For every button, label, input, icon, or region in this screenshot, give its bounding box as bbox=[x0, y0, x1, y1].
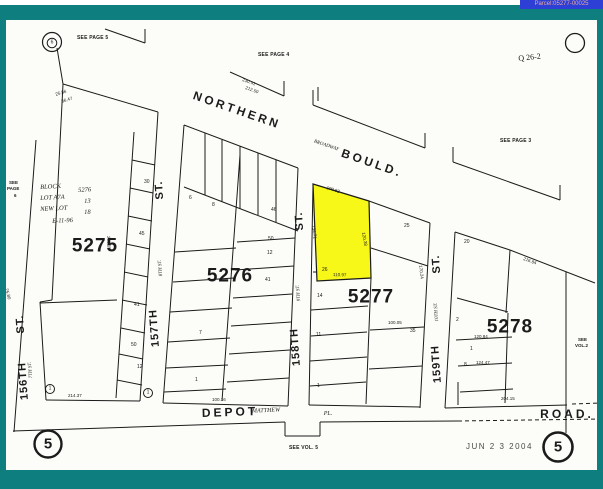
map-lot: 8 bbox=[212, 203, 215, 208]
street-name-bould: BOULD. bbox=[340, 147, 404, 179]
map-dim: 212.50 bbox=[244, 86, 258, 95]
map-dim: 170.24 bbox=[418, 265, 424, 279]
see-vol-2: VOL.2 bbox=[575, 344, 588, 349]
note-lot-value: 13 bbox=[84, 199, 91, 206]
see-page-5: SEE PAGE 5 bbox=[77, 36, 108, 41]
street-157: 157TH bbox=[148, 309, 162, 348]
page-number-right: 5 bbox=[554, 440, 562, 455]
map-lot: 14 bbox=[317, 294, 323, 299]
see-page-4: SEE PAGE 4 bbox=[258, 53, 289, 58]
circled-lot-1: 1 bbox=[147, 391, 150, 396]
map-lot: 2 bbox=[456, 318, 459, 323]
map-lot: 41 bbox=[265, 278, 271, 283]
map-dim: 124.47 bbox=[476, 361, 490, 366]
map-lot: 7 bbox=[199, 331, 202, 336]
note-lot: LOT A7A bbox=[40, 195, 65, 203]
map-lot: 1 bbox=[195, 378, 198, 383]
old-street-159: 10TH ST. bbox=[434, 302, 440, 321]
map-lot: 30 bbox=[144, 180, 150, 185]
map-lot: 26 bbox=[322, 268, 328, 273]
frame-left bbox=[0, 5, 6, 470]
street-158: 158TH bbox=[289, 328, 303, 367]
parcel-id-tag: Parcel:05277-00025 bbox=[520, 0, 603, 9]
map-dim: 204.15 bbox=[501, 397, 515, 402]
street-name-depot: DEPOT bbox=[202, 405, 259, 419]
map-dim: 36.47 bbox=[61, 97, 73, 105]
map-dim: 110.97 bbox=[333, 273, 347, 278]
tax-map-page: SEE PAGE 5SEE PAGE 4SEE PAGE 3SEEPAGE6SE… bbox=[0, 0, 603, 489]
map-dim: 25.86 bbox=[55, 90, 67, 98]
map-lot: 41 bbox=[134, 303, 140, 308]
date-stamp: JUN 2 3 2004 bbox=[466, 443, 533, 451]
note-newlot: NEW LOT bbox=[40, 206, 68, 214]
old-street-156: 7TH ST. bbox=[28, 362, 34, 379]
map-dim: 100.16 bbox=[212, 398, 226, 403]
map-lot: 46 bbox=[271, 208, 277, 213]
map-lot: 25 bbox=[404, 224, 410, 229]
street-156-st: ST. bbox=[15, 314, 27, 334]
map-lot: 1 bbox=[317, 384, 320, 389]
map-lot: 11 bbox=[316, 333, 321, 338]
note-newlot-value: 18 bbox=[84, 210, 91, 217]
old-street-157: 8TH ST. bbox=[158, 260, 164, 277]
map-lot: 50 bbox=[268, 237, 274, 242]
old-street-name-matthew: MATTHEW bbox=[252, 408, 280, 415]
map-dim: 100.62 bbox=[326, 186, 340, 195]
frame-bottom bbox=[0, 470, 603, 489]
map-lot: 20 bbox=[464, 240, 470, 245]
map-dim: 260.15 bbox=[106, 236, 111, 250]
street-name-road: ROAD. bbox=[540, 408, 594, 420]
map-lot: 12 bbox=[137, 365, 143, 370]
map-dim: 216.84 bbox=[522, 257, 536, 266]
note-block-value: 5276 bbox=[78, 187, 91, 194]
street-159: 159TH bbox=[430, 345, 444, 384]
street-name-northern: NORTHERN bbox=[192, 89, 283, 130]
frame-top bbox=[0, 5, 603, 20]
map-lot: 12 bbox=[267, 251, 273, 256]
see-vol-5: SEE VOL. 5 bbox=[289, 446, 318, 451]
label-layer: SEE PAGE 5SEE PAGE 4SEE PAGE 3SEEPAGE6SE… bbox=[0, 0, 603, 489]
see-page-6: PAGE bbox=[7, 187, 19, 192]
see-page-3: SEE PAGE 3 bbox=[500, 139, 531, 144]
see-page-6: 6 bbox=[14, 194, 17, 199]
block-number-5278: 5278 bbox=[487, 318, 533, 337]
map-dim: 120.84 bbox=[474, 335, 488, 340]
note-date: E-11-96 bbox=[52, 218, 73, 226]
map-lot: 6 bbox=[189, 196, 192, 201]
note-block: BLOCK bbox=[40, 184, 61, 192]
street-159-st: ST. bbox=[431, 254, 443, 274]
block-number-5276: 5276 bbox=[207, 267, 253, 286]
map-lot: 50 bbox=[131, 343, 137, 348]
see-page-6: SEE bbox=[9, 181, 18, 186]
map-lot: 1 bbox=[470, 347, 473, 352]
circled-lot-1: 1 bbox=[49, 387, 52, 392]
old-street-name-pl: PL. bbox=[324, 411, 333, 417]
handwritten-note: Q 26-2 bbox=[518, 53, 541, 63]
old-street-name-broadway: BROADWAY bbox=[313, 139, 339, 152]
frame-right bbox=[597, 5, 603, 470]
map-lot: 45 bbox=[139, 232, 145, 237]
street-158-st: ST. bbox=[294, 211, 306, 231]
map-dim: 214.37 bbox=[68, 394, 82, 399]
map-dim: 120.38 bbox=[361, 232, 368, 246]
block-number-5277: 5277 bbox=[348, 288, 394, 307]
map-lot: 35 bbox=[410, 329, 416, 334]
map-dim: 134.71 bbox=[311, 225, 317, 239]
old-street-158: 9TH ST. bbox=[296, 285, 302, 302]
map-lot: 8 bbox=[464, 363, 467, 368]
map-dim: 100.05 bbox=[388, 321, 402, 326]
symbol-6: 6 bbox=[51, 41, 54, 46]
see-vol-2: SEE bbox=[578, 338, 587, 343]
street-157-st: ST. bbox=[154, 180, 166, 200]
page-number-left: 5 bbox=[44, 437, 52, 452]
